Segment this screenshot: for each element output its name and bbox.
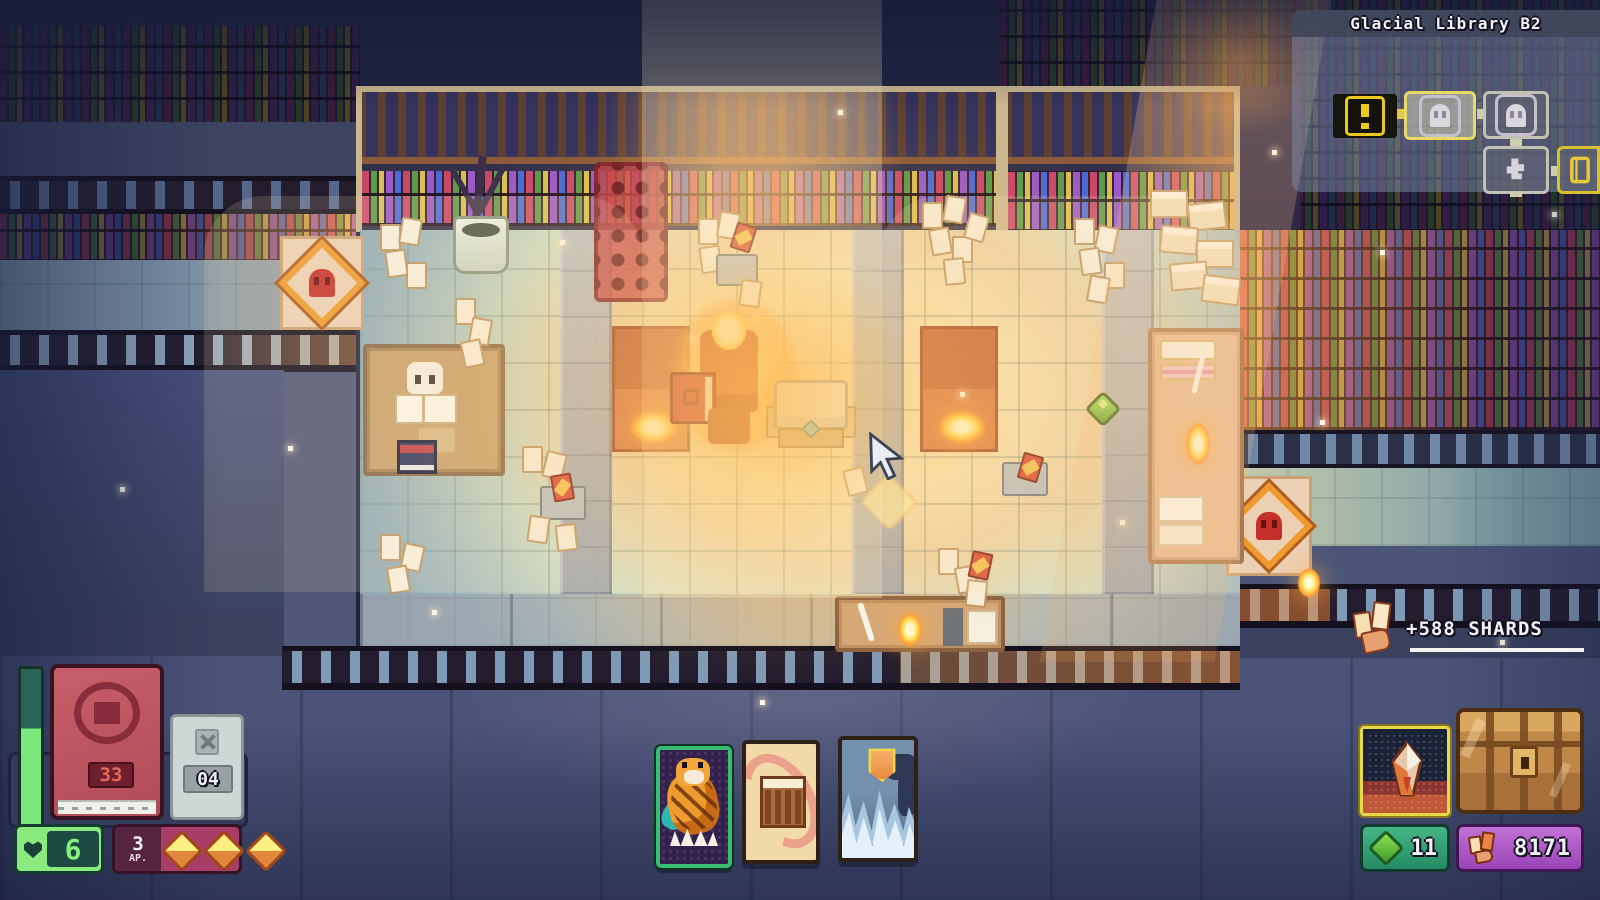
location-title: Glacial Library B2 xyxy=(1350,14,1541,33)
bookshelf-right-band xyxy=(1240,230,1600,430)
ghost-icon xyxy=(1430,104,1450,127)
minimap-room-card xyxy=(1557,146,1600,194)
ice-shield-art xyxy=(842,740,914,858)
mouse-cursor xyxy=(868,432,906,480)
deck-pile[interactable]: 33 xyxy=(50,664,164,820)
exclamation-icon xyxy=(1345,96,1385,136)
deck-count-badge: 33 xyxy=(88,762,134,788)
minimap-room-puzzle xyxy=(1483,146,1549,194)
chest-icon[interactable] xyxy=(1456,708,1584,814)
lower-wall-left xyxy=(0,370,284,660)
discard-x-icon xyxy=(195,729,219,755)
ap-label: AP. xyxy=(129,854,147,864)
bookshelf-top-right xyxy=(1000,0,1300,90)
notification-underline xyxy=(1410,648,1584,652)
minimap-room-alert xyxy=(1333,94,1397,138)
room-bottom-ledge xyxy=(360,594,1240,646)
discard-pile[interactable]: 04 xyxy=(170,714,244,820)
minimap-room-current xyxy=(1404,91,1476,140)
red-cabinet xyxy=(594,162,668,302)
hand-card-library[interactable] xyxy=(742,740,820,864)
deck-count: 33 xyxy=(100,764,123,786)
ap-value: 3 xyxy=(132,835,143,854)
hand-card-tiger[interactable] xyxy=(656,746,732,868)
railing-bottom xyxy=(282,646,1240,690)
ap-pip-icon xyxy=(245,830,287,872)
minimap-title-bar: Glacial Library B2 xyxy=(1292,10,1600,37)
heart-icon xyxy=(23,840,43,858)
discard-count: 04 xyxy=(197,769,219,790)
ghost-emblem-icon xyxy=(309,269,335,297)
ghost-rug xyxy=(280,236,364,330)
dark-tome xyxy=(397,440,437,474)
shards-value: 8171 xyxy=(1514,836,1571,861)
gems-value: 11 xyxy=(1411,836,1438,861)
ap-pip-icon xyxy=(161,830,203,872)
hp-pill: 6 xyxy=(14,824,104,874)
railing-left xyxy=(0,330,356,372)
railing-right-upper xyxy=(1240,430,1600,468)
dead-tree-planter xyxy=(447,150,517,280)
hp-bar xyxy=(18,666,44,828)
shards-gain-icon xyxy=(1352,602,1400,656)
minimap-room-scouted xyxy=(1483,91,1549,139)
ap-pip-icon xyxy=(203,830,245,872)
lamp-carpet xyxy=(920,326,998,452)
skull-icon xyxy=(407,362,443,394)
ap-pill: 3 AP. xyxy=(112,824,242,874)
book-icon xyxy=(1568,156,1592,184)
minimap-connector xyxy=(1510,192,1522,197)
railing-flame xyxy=(1294,542,1324,602)
wall-band-left xyxy=(0,122,356,178)
ghost-emblem-icon xyxy=(1256,512,1282,540)
hand-card-ice-shield[interactable] xyxy=(838,736,918,862)
gem-icon xyxy=(1368,830,1405,867)
shards-notification: +588 SHARDS xyxy=(1348,598,1598,660)
ghost-icon xyxy=(1506,104,1526,127)
puzzle-icon xyxy=(1501,155,1531,185)
discard-count-badge: 04 xyxy=(183,765,233,793)
altar[interactable] xyxy=(772,380,850,454)
wall-right-gap xyxy=(1240,86,1300,232)
library-art xyxy=(746,744,816,860)
tiger-art xyxy=(660,750,728,864)
hp-value: 6 xyxy=(65,833,82,866)
lower-wall-room-edge xyxy=(284,372,356,660)
candle-flame xyxy=(894,582,926,652)
gems-counter: 11 xyxy=(1360,824,1450,872)
game-screen: Glacial Library B2 +588 SHARDS 33 xyxy=(0,0,1600,900)
shards-gain-text: +588 SHARDS xyxy=(1406,618,1543,640)
player-mage[interactable] xyxy=(686,296,772,446)
stone-pillar xyxy=(852,230,904,594)
shards-counter: 8171 xyxy=(1456,824,1584,872)
shards-icon xyxy=(1469,832,1499,864)
candle-desk-right xyxy=(1148,328,1244,564)
relic-slot[interactable] xyxy=(1360,726,1450,816)
crystal-relic-icon xyxy=(1385,741,1429,801)
bookshelf-top-left xyxy=(0,26,360,126)
railing-upper-left xyxy=(0,176,356,216)
